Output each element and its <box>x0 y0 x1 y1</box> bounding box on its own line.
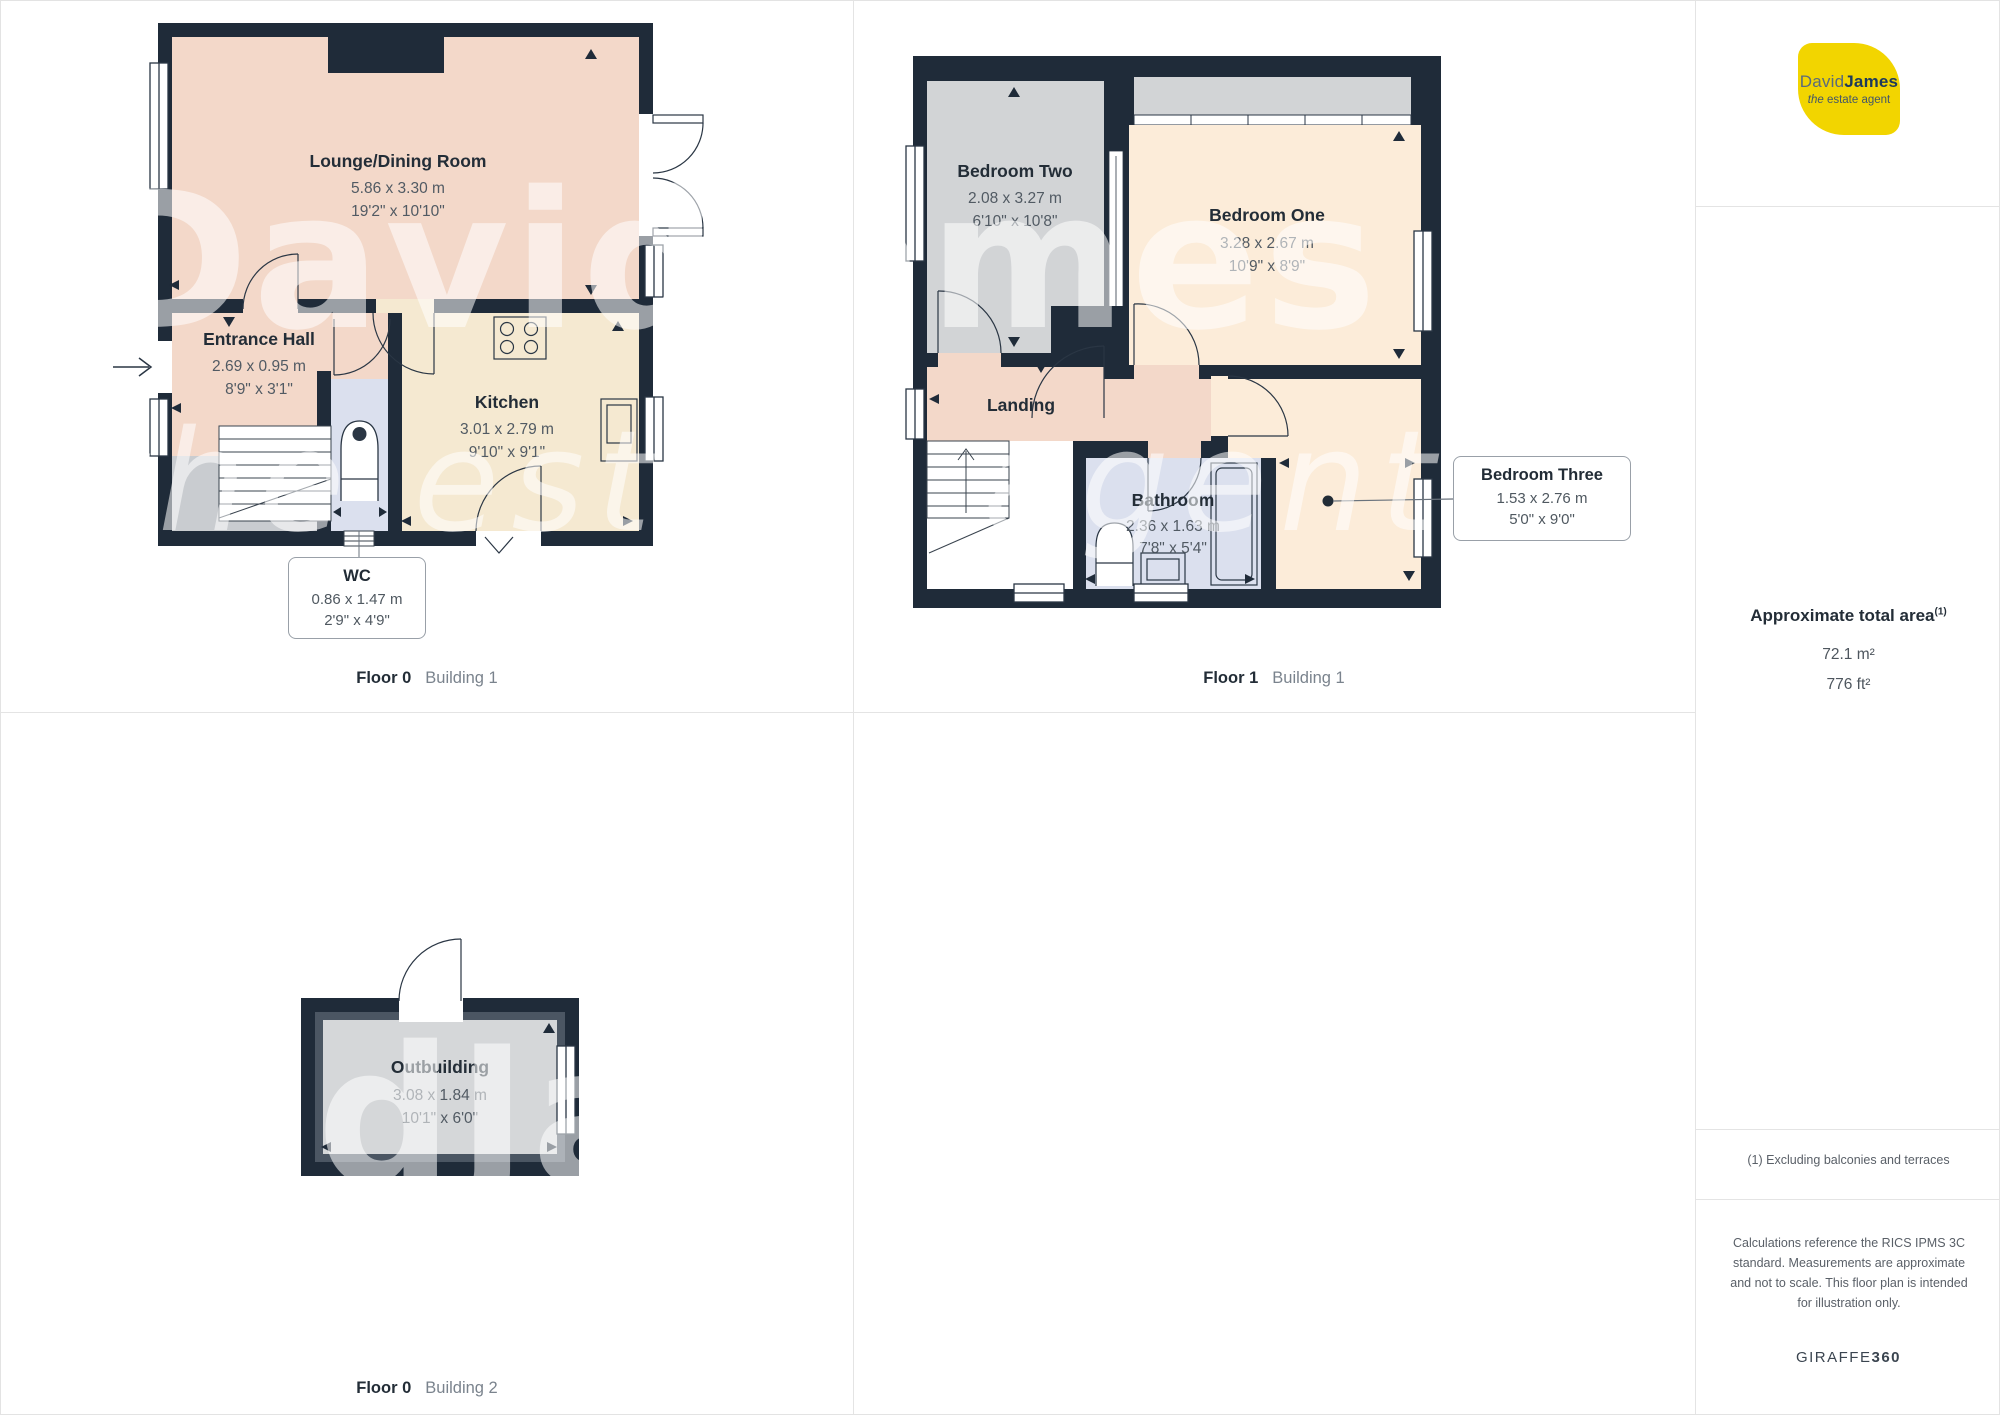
wardrobe-strip <box>1134 77 1411 125</box>
total-area-metric: 72.1 m² <box>1696 646 2000 664</box>
total-area-title: Approximate total area(1) <box>1696 606 2000 626</box>
doorway-lounge-kitchen <box>376 299 434 313</box>
floor-label-building: Building 2 <box>425 1379 497 1398</box>
bedroom-one-metric: 3.28 x 2.67 m <box>1220 235 1314 252</box>
bedroom-two-imperial: 6'10" x 10'8" <box>972 213 1057 230</box>
hall-metric: 2.69 x 0.95 m <box>212 358 306 375</box>
divider-horizontal <box>1 712 1695 713</box>
floorplan-page: Lounge/Dining Room 5.86 x 3.30 m 19'2" x… <box>0 0 2000 1415</box>
doorway-bedroom-one <box>1134 365 1199 379</box>
logo-tagline-rest: estate agent <box>1824 94 1891 106</box>
footnote-text: (1) Excluding balconies and terraces <box>1696 1153 2000 1167</box>
stairs-ground <box>219 426 331 521</box>
lounge-metric: 5.86 x 3.30 m <box>351 180 445 197</box>
divider-vertical <box>853 1 854 1415</box>
bathroom-name: Bathroom <box>1132 490 1215 510</box>
sidebar-divider-disclaimer <box>1696 1199 2000 1200</box>
floor-label-f1b1: Floor 1 Building 1 <box>853 669 1695 688</box>
total-area-imperial: 776 ft² <box>1696 676 2000 694</box>
landing-name: Landing <box>987 395 1055 415</box>
giraffe-360-text: 360 <box>1871 1349 1901 1366</box>
bathroom-imperial: 7'8" x 5'4" <box>1139 540 1207 557</box>
floorplan-floor1-building1: Bedroom Two 2.08 x 3.27 m 6'10" x 10'8" … <box>853 1 1695 712</box>
logo-brand-light: David <box>1800 72 1844 91</box>
bedroom-three-callout-title: Bedroom Three <box>1454 466 1630 485</box>
hall-imperial: 8'9" x 3'1" <box>225 381 293 398</box>
lounge-imperial: 19'2" x 10'10" <box>351 203 445 220</box>
doorway-outbuilding <box>399 996 463 1022</box>
bedroom-one-name: Bedroom One <box>1209 205 1325 225</box>
floor-label-building: Building 1 <box>425 669 497 688</box>
giraffe360-brand: GIRAFFE360 <box>1696 1349 2000 1366</box>
logo-brand-bold: James <box>1844 72 1898 91</box>
outbuilding-imperial: 10'1" x 6'0" <box>402 1110 478 1127</box>
disclaimer-text: Calculations reference the RICS IPMS 3C … <box>1729 1233 1969 1313</box>
bedroom-three-callout-metric: 1.53 x 2.76 m <box>1454 488 1630 509</box>
logo-brand-text: DavidJames <box>1800 72 1898 92</box>
bedroom-two-name: Bedroom Two <box>957 161 1072 181</box>
bathroom-metric: 2.36 x 1.63 m <box>1126 518 1220 535</box>
sidebar-divider-top <box>1696 206 2000 207</box>
giraffe-text: GIRAFFE <box>1796 1349 1872 1366</box>
floor-label-f0b2: Floor 0 Building 2 <box>1 1379 853 1398</box>
sidebar: DavidJames the estate agent Approximate … <box>1695 1 2000 1415</box>
logo-tagline-italic: the <box>1808 94 1824 106</box>
sidebar-divider-footnote <box>1696 1129 2000 1130</box>
floor-label-floor: Floor 1 <box>1203 669 1258 688</box>
lounge-name: Lounge/Dining Room <box>310 151 487 171</box>
bedroom-three-callout-imperial: 5'0" x 9'0" <box>1454 509 1630 530</box>
outbuilding-metric: 3.08 x 1.84 m <box>393 1087 487 1104</box>
hob-icon <box>494 317 546 359</box>
kitchen-name: Kitchen <box>475 392 539 412</box>
floor-label-f0b1: Floor 0 Building 1 <box>1 669 853 688</box>
floorplan-floor0-building2: Outbuilding 3.08 x 1.84 m 10'1" x 6'0" <box>1 712 853 1415</box>
floor-label-building: Building 1 <box>1272 669 1344 688</box>
doorway-lounge-hall <box>243 299 298 313</box>
toilet-icon <box>341 421 378 501</box>
kitchen-imperial: 9'10" x 9'1" <box>469 444 545 461</box>
floorplan-floor0-building1: Lounge/Dining Room 5.86 x 3.30 m 19'2" x… <box>1 1 853 712</box>
chimney-block <box>1051 306 1129 366</box>
bedroom-two-metric: 2.08 x 3.27 m <box>968 190 1062 207</box>
wc-callout-imperial: 2'9" x 4'9" <box>289 610 425 631</box>
kitchen-metric: 3.01 x 2.79 m <box>460 421 554 438</box>
wc-callout: WC 0.86 x 1.47 m 2'9" x 4'9" <box>288 557 426 639</box>
partition-bedrooms <box>1109 151 1123 331</box>
wc-callout-metric: 0.86 x 1.47 m <box>289 589 425 610</box>
hall-name: Entrance Hall <box>203 329 315 349</box>
floor-label-floor: Floor 0 <box>356 1379 411 1398</box>
logo-tagline: the estate agent <box>1808 94 1891 106</box>
window-outbuilding <box>557 1046 575 1134</box>
david-james-logo: DavidJames the estate agent <box>1798 43 1900 135</box>
front-door-opening <box>158 341 172 393</box>
door-outbuilding <box>399 939 461 1001</box>
chimney-breast <box>328 37 444 73</box>
doorway-bedroom-two <box>938 353 1001 367</box>
french-doors <box>639 114 703 236</box>
outbuilding-name: Outbuilding <box>391 1057 489 1077</box>
total-area-superscript: (1) <box>1935 606 1947 617</box>
doorway-bathroom <box>1148 441 1201 458</box>
doorway-bedroom-three <box>1211 376 1228 436</box>
stairwell-void <box>927 441 1073 589</box>
entry-arrow-icon <box>113 358 151 376</box>
wc-callout-title: WC <box>289 567 425 586</box>
bedroom-three-callout: Bedroom Three 1.53 x 2.76 m 5'0" x 9'0" <box>1453 456 1631 541</box>
floor-label-floor: Floor 0 <box>356 669 411 688</box>
bedroom-one-imperial: 10'9" x 8'9" <box>1229 258 1305 275</box>
